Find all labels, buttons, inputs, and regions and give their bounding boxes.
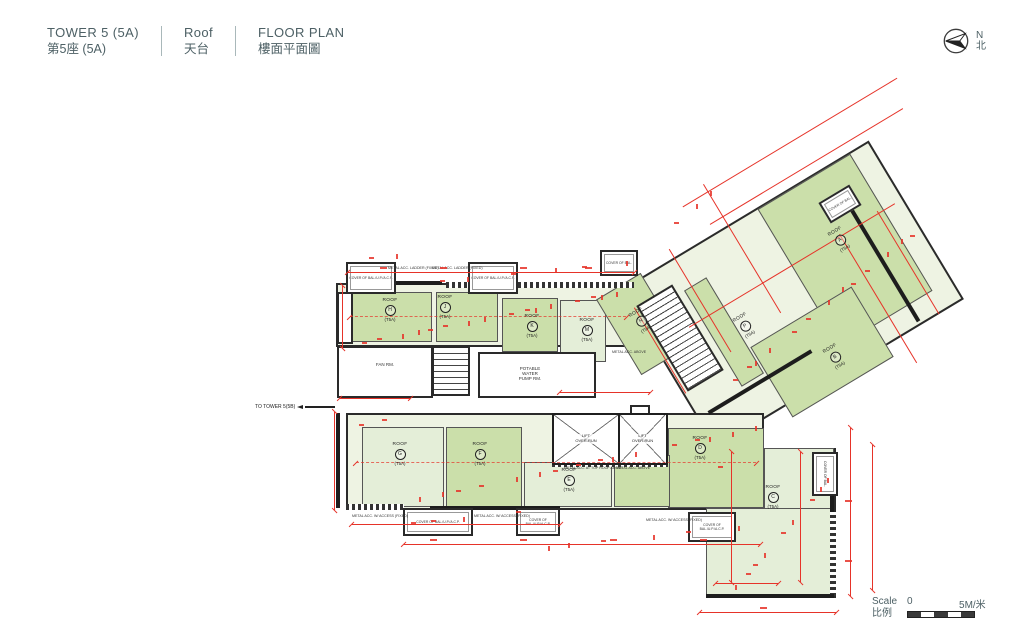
dimension-tick <box>612 457 614 462</box>
dimension-tick <box>359 424 364 426</box>
dimension-tick <box>733 379 738 381</box>
dimension-tick <box>479 485 484 487</box>
dimension-tick <box>616 292 618 297</box>
dimension-tick <box>764 553 766 558</box>
dimension-tick <box>369 257 374 259</box>
roof-label-g: ROOFG(T5A) <box>383 442 417 466</box>
dimension-tick <box>585 267 592 269</box>
dimension-tick <box>901 239 903 244</box>
dimension-tick <box>887 252 889 257</box>
dimension-tick <box>402 334 404 339</box>
cover-box: COVER OF BAL./U.P./A.C.P. <box>688 512 736 542</box>
dimension-tick <box>700 539 707 541</box>
dimension-line <box>342 286 343 348</box>
cover-box-label: COVER OF BAL. <box>826 194 853 214</box>
dimension-tick <box>419 497 421 502</box>
cover-box-label: COVER OF BAL./U.P./A.C.P. <box>518 517 558 527</box>
dimension-tick <box>516 511 521 513</box>
dimension-tick <box>769 348 771 353</box>
dimension-line <box>352 524 560 525</box>
dimension-tick <box>610 539 617 541</box>
dimension-tick <box>674 222 679 224</box>
dimension-tick <box>440 280 445 282</box>
dimension-line <box>404 544 760 545</box>
arrow-line <box>305 406 335 407</box>
dimension-tick <box>653 535 655 540</box>
dimension-tick <box>845 560 852 562</box>
roof-label-h: ROOFH(T5A) <box>373 298 407 322</box>
metal-access-label: METAL ACC. W/ ACCESS (FIXED) <box>352 514 388 518</box>
roof-label-f: ROOFF(T5A) <box>463 442 497 466</box>
dimension-tick <box>362 342 367 344</box>
lift-overrun-1: LIFT OVER-RUN <box>554 415 620 463</box>
dimension-tick <box>591 296 596 298</box>
dimension-tick <box>810 499 815 501</box>
roof-area-f <box>446 427 522 507</box>
dimension-tick <box>686 531 691 533</box>
dimension-tick <box>575 300 580 302</box>
dimension-tick <box>456 490 461 492</box>
dimension-tick <box>865 270 870 272</box>
dimension-tick <box>732 432 734 437</box>
dimension-tick <box>755 426 757 431</box>
dimension-tick <box>738 526 740 531</box>
dimension-tick <box>672 444 677 446</box>
dimension-line <box>731 452 732 582</box>
roof-label-d: ROOFD(T5A) <box>683 436 717 460</box>
dimension-tick <box>467 277 469 282</box>
cover-box-label: COVER OF BAL. <box>605 260 633 266</box>
dimension-tick <box>443 325 448 327</box>
dimension-line <box>872 445 873 590</box>
pump-room-label: POTABLE WATER PUMP RM. <box>500 366 560 381</box>
floor-plan-drawing: LIFT OVER-RUN LIFT OVER-RUN COVER OF BAL… <box>0 0 1024 639</box>
staircase <box>432 346 470 396</box>
parapet-hatch <box>346 504 404 510</box>
to-tower-arrow: TO TOWER 5(5B) <box>255 404 335 410</box>
dimension-tick <box>576 464 581 466</box>
dimension-tick <box>535 308 537 313</box>
roof-label-j: ROOFJ(T5A) <box>428 295 462 319</box>
dimension-line <box>850 428 851 596</box>
dimension-line <box>700 612 836 613</box>
dimension-tick <box>806 318 811 320</box>
service-room <box>337 292 353 344</box>
dimension-tick <box>463 517 465 522</box>
roof-label-e: ROOFE(T5A) <box>552 468 586 492</box>
dimension-tick <box>760 607 767 609</box>
lift-overrun-2: LIFT OVER-RUN <box>620 415 665 463</box>
dimension-tick <box>820 487 822 492</box>
dimension-tick <box>440 267 447 269</box>
dimension-tick <box>377 338 382 340</box>
roof-label-m: ROOFM(T5A) <box>570 318 604 342</box>
dimension-tick <box>792 331 797 333</box>
dimension-tick <box>755 361 757 366</box>
dimension-line <box>560 392 650 393</box>
dimension-tick <box>525 309 530 311</box>
dimension-tick <box>431 520 436 522</box>
roof-label-k: ROOFK(T5A) <box>515 314 549 338</box>
lift-overrun-block: LIFT OVER-RUN LIFT OVER-RUN <box>552 413 668 465</box>
dimension-tick <box>842 287 844 292</box>
dimension-tick <box>746 573 751 575</box>
dimension-tick <box>828 300 830 305</box>
cover-box-label: COVER OF BAL. <box>822 460 828 488</box>
dimension-tick <box>735 585 737 590</box>
dimension-tick <box>635 452 637 457</box>
dimension-tick <box>626 261 628 266</box>
dimension-tick <box>718 466 723 468</box>
dimension-tick <box>851 283 856 285</box>
dimension-tick <box>442 492 444 497</box>
dimension-tick <box>539 472 541 477</box>
dimension-tick <box>710 191 712 196</box>
dimension-tick <box>484 317 486 322</box>
dimension-tick <box>418 330 420 335</box>
dimension-tick <box>601 295 603 300</box>
dimension-tick <box>598 459 603 461</box>
arrow-left-icon <box>297 405 303 409</box>
cover-box-label: COVER OF BAL./U.P./A.C.P. <box>470 275 515 281</box>
dimension-tick <box>548 546 550 551</box>
dimension-tick <box>555 268 557 273</box>
dimension-tick <box>827 478 829 483</box>
cover-box: COVER OF BAL. <box>812 452 838 496</box>
fan-room-label: FAN RM. <box>340 362 430 367</box>
dimension-line <box>340 398 410 399</box>
cover-box-label: COVER OF BAL./U.P./A.C.P. <box>690 522 734 532</box>
metal-above-label: METAL ACC. ABOVE <box>616 466 646 470</box>
dimension-tick <box>568 543 570 548</box>
dimension-line <box>334 412 335 510</box>
dimension-tick <box>516 477 518 482</box>
floor-plan-page: TOWER 5 (5A) 第5座 (5A) Roof 天台 FLOOR PLAN… <box>0 0 1024 639</box>
metal-access-label: METAL ACC. W/ ACCESS (FIXED) <box>474 514 510 518</box>
dimension-tick <box>511 273 516 275</box>
dimension-tick <box>747 366 752 368</box>
dimension-line <box>348 272 634 273</box>
metal-ladder-label: METAL ACC. LADDER (FIXED) <box>432 266 466 270</box>
dimension-tick <box>601 540 606 542</box>
wall-segment <box>706 594 834 598</box>
lift-label: OVER-RUN <box>575 439 596 444</box>
dimension-tick <box>550 304 552 309</box>
lift-label: OVER-RUN <box>632 439 653 444</box>
dimension-tick <box>428 329 433 331</box>
dimension-tick <box>382 419 387 421</box>
dimension-tick <box>411 522 416 524</box>
dimension-tick <box>696 204 698 209</box>
dimension-line <box>716 583 778 584</box>
dimension-tick <box>396 254 398 259</box>
metal-above-label: METAL ACC. ABOVE <box>612 350 638 354</box>
cover-box: COVER OF BAL./U.P./A.C.P. <box>516 508 560 536</box>
pump-room-label-line: PUMP RM. <box>500 376 560 381</box>
dimension-tick <box>520 539 527 541</box>
dimension-tick <box>430 539 437 541</box>
wall-segment <box>336 413 340 508</box>
dimension-tick <box>468 321 470 326</box>
cover-box-label: COVER OF BAL./U.P./A.C.P. <box>348 275 393 281</box>
metal-access-label: METAL ACC. W/ ACCESS (FIXED) <box>646 518 682 522</box>
dimension-tick <box>753 564 758 566</box>
dimension-tick <box>509 313 514 315</box>
dimension-line <box>800 452 801 582</box>
dimension-tick <box>520 267 527 269</box>
to-tower-label: TO TOWER 5(5B) <box>255 404 295 410</box>
parapet-hatch <box>830 512 836 596</box>
dimension-tick <box>792 520 794 525</box>
dimension-tick <box>380 267 387 269</box>
dimension-tick <box>845 500 852 502</box>
roof-label-c: ROOFC(T5A) <box>756 485 790 509</box>
fan-room <box>337 346 433 398</box>
roof-area-g <box>362 427 444 507</box>
metal-ladder-label: METAL ACC. LADDER (FIXED) <box>388 266 422 270</box>
dimension-tick <box>910 235 915 237</box>
dimension-tick <box>781 532 786 534</box>
